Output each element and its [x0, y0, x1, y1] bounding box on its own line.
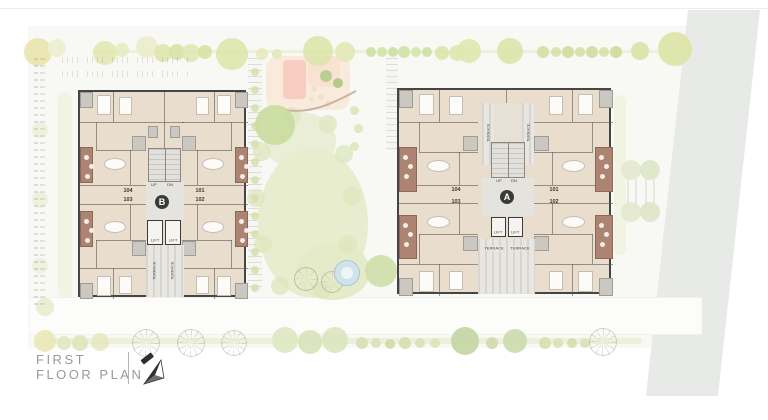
tree: [365, 255, 397, 287]
wall-line: [572, 264, 573, 296]
terrace-furniture: [89, 164, 94, 169]
shrub: [251, 176, 259, 184]
lift-label: LIFT: [169, 238, 177, 242]
tree: [377, 47, 387, 57]
water-feature-center: [341, 267, 353, 279]
parking-tick: [92, 71, 93, 77]
note-dash: [34, 240, 38, 242]
tree: [177, 329, 205, 357]
shrub: [350, 142, 359, 151]
parking-tick: [102, 57, 103, 63]
wall-line: [592, 122, 593, 152]
parking-tick: [167, 71, 168, 77]
tree: [589, 328, 617, 356]
tree: [388, 47, 398, 57]
terrace-furniture: [404, 242, 409, 247]
terrace-furniture: [403, 155, 408, 160]
note-dash: [34, 303, 38, 305]
tree: [91, 333, 109, 351]
note-dash: [34, 198, 38, 200]
wall-line: [96, 122, 97, 150]
wall-line: [552, 203, 553, 234]
note-dash: [40, 93, 45, 95]
terrace-furniture: [408, 232, 413, 237]
tree: [298, 330, 322, 354]
tree: [567, 338, 577, 348]
wall-line: [592, 234, 593, 264]
terrace-furniture: [604, 232, 609, 237]
note-dash: [40, 205, 45, 207]
note-dash: [40, 58, 45, 60]
terrace-furniture: [599, 155, 604, 160]
dn-label: DN: [509, 179, 519, 184]
pergola-rung: [386, 76, 398, 77]
parking-tick: [97, 57, 98, 63]
note-dash: [34, 247, 38, 249]
parking-tick: [67, 71, 68, 77]
note-dash: [34, 128, 38, 130]
wall-line: [182, 204, 248, 205]
parking-tick: [187, 71, 188, 77]
terrace-furniture: [239, 155, 244, 160]
note-dash: [40, 142, 45, 144]
terrace-label: TERRACE: [166, 250, 178, 292]
wet-area: [399, 90, 413, 108]
bush: [333, 78, 343, 88]
dining-table: [202, 158, 224, 170]
note-dash: [34, 212, 38, 214]
terrace-balcony: [235, 147, 248, 183]
note-dash: [40, 79, 45, 81]
terrace-balcony: [595, 147, 613, 192]
dn-label: DN: [165, 183, 175, 188]
tree: [415, 338, 425, 348]
bed: [419, 94, 434, 115]
bed: [419, 271, 434, 292]
pergola-rung: [248, 94, 262, 95]
wall-line: [96, 240, 97, 268]
tree: [303, 36, 333, 66]
wet-area: [534, 236, 549, 251]
parking-tick: [62, 71, 63, 77]
parking-tick: [162, 71, 163, 77]
wall-line: [506, 90, 507, 103]
parking-tick: [162, 57, 163, 63]
pergola-rung: [248, 82, 262, 83]
tree: [640, 160, 660, 180]
tree: [503, 329, 527, 353]
tree: [422, 47, 432, 57]
terrace-balcony: [595, 215, 613, 259]
tree: [216, 38, 248, 70]
tree: [57, 336, 71, 350]
note-dash: [40, 247, 45, 249]
terrace-label: TERRACE: [148, 250, 160, 292]
note-dash: [40, 254, 45, 256]
building-b-badge: B: [155, 195, 169, 209]
note-dash: [34, 289, 38, 291]
parking-tick: [112, 57, 113, 63]
lift-label: LIFT: [151, 238, 159, 242]
tree: [256, 48, 268, 60]
terrace-furniture: [89, 228, 94, 233]
note-dash: [34, 191, 38, 193]
tree: [537, 46, 549, 58]
wet-area: [235, 283, 248, 299]
pergola-rung: [248, 76, 262, 77]
wet-area: [599, 90, 613, 108]
note-dash: [40, 233, 45, 235]
terrace-furniture: [84, 155, 89, 160]
note-dash: [34, 149, 38, 151]
note-dash: [40, 149, 45, 151]
wet-area: [148, 126, 158, 138]
note-dash: [40, 289, 45, 291]
note-dash: [34, 72, 38, 74]
wall-line: [399, 122, 478, 123]
wall-line: [552, 152, 553, 185]
terrace-furniture: [240, 174, 245, 179]
note-dash: [40, 177, 45, 179]
wet-area: [399, 278, 413, 296]
wall-line: [534, 203, 613, 204]
wall-line: [399, 203, 478, 204]
terrace-balcony: [399, 215, 417, 259]
wall-line: [231, 240, 232, 268]
wall-line: [164, 92, 165, 148]
wall-line: [80, 204, 146, 205]
lift-box: LIFT: [491, 217, 506, 237]
wall-line: [572, 90, 573, 122]
note-dash: [34, 296, 38, 298]
note-dash: [40, 86, 45, 88]
bed: [97, 276, 111, 296]
terrace-furniture: [600, 174, 605, 179]
tree: [72, 335, 88, 351]
title-divider: [128, 352, 129, 384]
unit-label-101: 101: [548, 186, 560, 192]
parking-tick: [152, 57, 153, 63]
terrace-furniture: [85, 174, 90, 179]
note-dash: [34, 65, 38, 67]
tree: [272, 49, 282, 59]
wall-line: [182, 122, 248, 123]
shrub: [251, 104, 259, 112]
bed: [549, 271, 563, 290]
note-dash: [40, 114, 45, 116]
parking-tick: [102, 71, 103, 77]
wall-line: [459, 203, 460, 234]
parking-tick: [147, 57, 148, 63]
parking-tick: [72, 57, 73, 63]
terrace-label: TERRACE: [486, 246, 501, 251]
note-dash: [34, 163, 38, 165]
wall-line: [439, 264, 440, 296]
wall-line: [130, 150, 131, 185]
wall-line: [130, 204, 131, 240]
parking-tick: [72, 71, 73, 77]
note-dash: [34, 114, 38, 116]
note-dash: [34, 219, 38, 221]
bush: [320, 70, 332, 82]
note-dash: [40, 212, 45, 214]
shrub: [251, 68, 259, 76]
tree: [631, 42, 649, 60]
tree: [198, 45, 212, 59]
shrub: [251, 194, 259, 202]
pergola-rung: [248, 274, 262, 275]
wall-line: [80, 122, 146, 123]
tree: [610, 46, 622, 58]
parking-tick: [142, 57, 143, 63]
tree: [366, 47, 376, 57]
note-dash: [34, 177, 38, 179]
note-dash: [40, 184, 45, 186]
note-dash: [34, 170, 38, 172]
stepping-stone: [311, 86, 317, 92]
wall-line: [419, 152, 478, 153]
wall-line: [419, 122, 420, 152]
tree: [586, 46, 598, 58]
note-dash: [34, 121, 38, 123]
note-dash: [40, 296, 45, 298]
tree: [221, 330, 247, 356]
lift-box: LIFT: [147, 220, 163, 245]
parking-tick: [187, 57, 188, 63]
parking-tick: [92, 57, 93, 63]
terrace-balcony: [235, 211, 248, 247]
terrace-furniture: [84, 219, 89, 224]
terrace-balcony: [399, 147, 417, 192]
tree: [621, 160, 641, 180]
wall-line: [534, 264, 613, 265]
wall-line: [80, 185, 146, 186]
up-label: UP: [149, 183, 159, 188]
wet-area: [182, 136, 196, 151]
parking-tick: [127, 71, 128, 77]
parking-tick: [117, 57, 118, 63]
terrace-furniture: [240, 238, 245, 243]
pergola-rung: [248, 166, 262, 167]
wall-line: [419, 234, 478, 235]
note-dash: [40, 135, 45, 137]
note-dash: [34, 142, 38, 144]
tree: [385, 339, 395, 349]
bed: [217, 95, 231, 115]
tree: [322, 327, 348, 353]
wall-line: [534, 234, 593, 235]
note-dash: [40, 261, 45, 263]
tree: [435, 46, 449, 60]
building-a-plan: TERRACE TERRACE UP DN A LIFT LIFT TERRAC…: [397, 88, 611, 294]
north-arrow-icon: [134, 350, 170, 388]
tree: [599, 47, 609, 57]
shrub: [251, 266, 259, 274]
parking-tick: [172, 71, 173, 77]
page-top-edge: [0, 8, 768, 9]
tree: [356, 337, 368, 349]
shrub: [251, 284, 259, 292]
wet-area: [463, 136, 478, 151]
bed: [119, 276, 132, 294]
note-dash: [34, 275, 38, 277]
tree: [457, 39, 481, 63]
tree: [486, 337, 498, 349]
tree: [34, 330, 56, 352]
floor-plan-page: UP DN B LIFT LIFT TERRACE TERRACE 104 10…: [0, 0, 768, 420]
parking-tick: [177, 57, 178, 63]
tree: [411, 47, 421, 57]
note-dash: [40, 282, 45, 284]
note-dash: [34, 268, 38, 270]
note-dash: [40, 100, 45, 102]
lift-box: LIFT: [165, 220, 181, 245]
parking-tick: [62, 57, 63, 63]
pergola-rung: [248, 280, 262, 281]
bed: [578, 271, 593, 292]
dining-table: [562, 216, 585, 228]
wall-line: [214, 268, 215, 299]
tree: [294, 267, 318, 291]
pergola-rung: [248, 184, 262, 185]
wall-line: [113, 92, 114, 122]
note-dash: [40, 240, 45, 242]
shrub: [251, 212, 259, 220]
parking-tick: [172, 57, 173, 63]
terrace-furniture: [244, 164, 249, 169]
wet-area: [235, 92, 248, 108]
wet-area: [132, 241, 146, 256]
wet-area: [463, 236, 478, 251]
tree: [553, 338, 563, 348]
terrace-furniture: [404, 174, 409, 179]
wall-line: [197, 204, 198, 240]
tree: [399, 337, 411, 349]
tree: [115, 43, 129, 57]
lift-label: LIFT: [494, 230, 502, 234]
parking-tick: [177, 71, 178, 77]
wet-area: [80, 92, 93, 108]
parking-tick: [142, 71, 143, 77]
shrub: [251, 230, 259, 238]
dining-table: [427, 160, 450, 172]
parking-tick: [77, 57, 78, 63]
parking-tick: [122, 57, 123, 63]
note-dash: [34, 135, 38, 137]
stepping-stone: [325, 101, 331, 107]
wet-area: [534, 136, 549, 151]
wet-area: [599, 278, 613, 296]
lift-label: LIFT: [511, 230, 519, 234]
dining-table: [202, 221, 224, 233]
terrace-label: TERRACE: [512, 246, 527, 251]
wall-line: [534, 122, 613, 123]
wall-line: [534, 152, 593, 153]
bed: [97, 95, 111, 115]
wall-line: [419, 234, 420, 264]
lawn-fringe: [339, 235, 357, 253]
hedge-strip: [58, 92, 72, 298]
note-dash: [34, 205, 38, 207]
tree: [48, 39, 66, 57]
pergola-rung: [248, 172, 262, 173]
dining-table: [427, 216, 450, 228]
wall-line: [459, 152, 460, 185]
up-label: UP: [494, 179, 504, 184]
terrace-balcony: [80, 147, 93, 183]
wall-line: [214, 92, 215, 122]
dining-table: [104, 221, 126, 233]
pergola-rung: [248, 100, 262, 101]
pergola-rung: [386, 64, 398, 65]
note-dash: [40, 226, 45, 228]
bed: [119, 97, 132, 115]
note-dash: [40, 219, 45, 221]
tree: [371, 338, 381, 348]
tree: [562, 46, 574, 58]
parking-tick: [147, 71, 148, 77]
wall-line: [231, 122, 232, 150]
bed: [449, 96, 463, 115]
note-dash: [34, 226, 38, 228]
tree: [451, 327, 479, 355]
note-dash: [34, 58, 38, 60]
tree: [255, 105, 295, 145]
tree: [335, 42, 355, 62]
tree: [272, 327, 298, 353]
note-dash: [34, 156, 38, 158]
shrub: [251, 140, 259, 148]
note-dash: [40, 191, 45, 193]
parking-tick: [137, 71, 138, 77]
wet-area: [182, 241, 196, 256]
pergola-rung: [386, 70, 398, 71]
unit-label-104: 104: [450, 186, 462, 192]
unit-label-102: 102: [548, 198, 560, 204]
note-dash: [34, 184, 38, 186]
parking-tick: [77, 71, 78, 77]
note-dash: [40, 121, 45, 123]
stepping-stone: [318, 94, 324, 100]
pergola-rung: [386, 58, 398, 59]
note-dash: [34, 100, 38, 102]
lawn-fringe: [343, 187, 361, 205]
lift-box: LIFT: [508, 217, 523, 237]
parking-tick: [167, 57, 168, 63]
note-dash: [40, 163, 45, 165]
parking-tick: [87, 71, 88, 77]
note-dash: [34, 107, 38, 109]
parking-tick: [112, 71, 113, 77]
terrace-furniture: [244, 228, 249, 233]
tree: [398, 46, 410, 58]
note-dash: [34, 261, 38, 263]
shrub: [251, 86, 259, 94]
wall-line: [439, 90, 440, 122]
shrub: [354, 124, 363, 133]
tree: [658, 32, 692, 66]
bed: [217, 276, 231, 296]
note-dash: [40, 65, 45, 67]
tree: [539, 337, 551, 349]
staircase: [491, 142, 525, 178]
terrace-furniture: [600, 242, 605, 247]
note-dash: [34, 93, 38, 95]
pergola-rung: [248, 64, 262, 65]
tree: [551, 47, 561, 57]
tree: [640, 202, 660, 222]
note-dash: [40, 275, 45, 277]
